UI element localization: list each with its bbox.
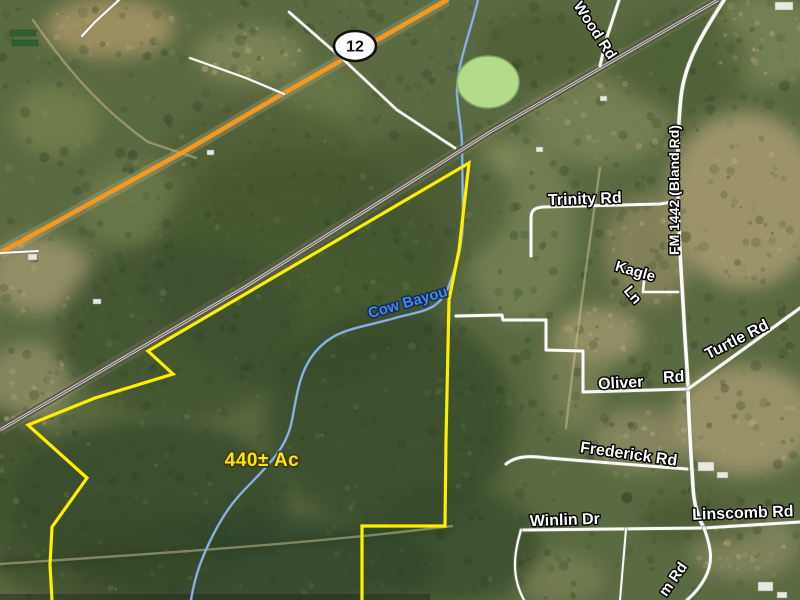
canopy-dot xyxy=(21,500,27,506)
canopy-dot xyxy=(256,71,261,76)
canopy-dot xyxy=(732,414,738,420)
canopy-dot xyxy=(685,532,692,539)
canopy-dot xyxy=(452,415,457,420)
field-dot xyxy=(790,133,793,136)
canopy-dot xyxy=(376,80,386,90)
field-dot xyxy=(111,27,115,31)
canopy-highlight-dot xyxy=(144,359,146,361)
canopy-dot xyxy=(407,256,414,263)
canopy-highlight-dot xyxy=(381,582,385,586)
canopy-dot xyxy=(760,279,766,285)
canopy-dot xyxy=(246,505,257,516)
canopy-dot xyxy=(498,306,502,310)
canopy-dot xyxy=(86,230,95,239)
field-dot xyxy=(728,3,735,10)
canopy-dot xyxy=(462,547,468,553)
canopy-dot xyxy=(17,7,21,11)
canopy-highlight-dot xyxy=(400,549,404,553)
canopy-highlight-dot xyxy=(552,470,557,475)
field-dot xyxy=(86,17,91,22)
canopy-dot xyxy=(131,473,140,482)
canopy-highlight-dot xyxy=(350,333,353,336)
canopy-dot xyxy=(119,369,128,378)
canopy-dot xyxy=(96,357,102,363)
canopy-highlight-dot xyxy=(74,30,79,35)
canopy-dot xyxy=(93,280,96,283)
canopy-dot xyxy=(703,317,710,324)
canopy-dot xyxy=(41,60,46,65)
field-dot xyxy=(762,234,766,238)
field-dot xyxy=(760,451,762,453)
field-dot xyxy=(623,349,626,352)
field-dot xyxy=(703,402,706,405)
canopy-highlight-dot xyxy=(81,242,88,249)
canopy-dot xyxy=(59,147,69,157)
canopy-dot xyxy=(275,72,282,79)
canopy-dot xyxy=(528,399,537,408)
canopy-highlight-dot xyxy=(653,339,657,343)
field-dot xyxy=(618,434,623,439)
canopy-dot xyxy=(285,20,294,29)
canopy-highlight-dot xyxy=(515,178,518,181)
canopy-dot xyxy=(203,122,207,126)
field-dot xyxy=(675,432,679,436)
canopy-dot xyxy=(761,477,764,480)
canopy-highlight-dot xyxy=(361,194,363,196)
field-dot xyxy=(682,439,685,442)
canopy-highlight-dot xyxy=(218,270,220,272)
field-dot xyxy=(682,144,685,147)
canopy-highlight-dot xyxy=(184,280,186,282)
canopy-dot xyxy=(485,373,490,378)
canopy-dot xyxy=(650,566,655,571)
canopy-highlight-dot xyxy=(487,577,493,583)
acreage-label: 440± Ac xyxy=(225,450,300,471)
canopy-highlight-dot xyxy=(414,443,418,447)
field-dot xyxy=(21,308,26,313)
canopy-dot xyxy=(691,123,697,129)
canopy-dot xyxy=(588,340,597,349)
canopy-dot xyxy=(2,293,12,303)
canopy-highlight-dot xyxy=(649,72,652,75)
canopy-dot xyxy=(131,568,139,576)
canopy-highlight-dot xyxy=(697,405,699,407)
canopy-dot xyxy=(271,127,277,133)
field-dot xyxy=(43,243,49,249)
canopy-highlight-dot xyxy=(631,28,639,36)
canopy-dot xyxy=(70,59,81,70)
oliver-label: Oliver xyxy=(598,374,644,393)
canopy-dot xyxy=(640,503,644,507)
canopy-dot xyxy=(78,169,85,176)
canopy-highlight-dot xyxy=(220,104,226,110)
canopy-dot xyxy=(20,107,31,118)
canopy-dot xyxy=(197,177,201,181)
canopy-dot xyxy=(594,563,597,566)
canopy-dot xyxy=(646,112,654,120)
field-dot xyxy=(636,143,643,150)
canopy-dot xyxy=(205,212,211,218)
field-dot xyxy=(623,322,628,327)
canopy-dot xyxy=(552,498,555,501)
field-dot xyxy=(728,572,730,574)
canopy-dot xyxy=(72,430,79,437)
canopy-dot xyxy=(324,34,327,37)
canopy-highlight-dot xyxy=(107,14,113,20)
canopy-highlight-dot xyxy=(752,473,756,477)
canopy-dot xyxy=(457,371,465,379)
field-dot xyxy=(291,61,296,66)
canopy-highlight-dot xyxy=(184,23,192,31)
field-dot xyxy=(791,22,793,24)
canopy-highlight-dot xyxy=(550,162,558,170)
canopy-highlight-dot xyxy=(114,87,121,94)
canopy-highlight-dot xyxy=(626,143,632,149)
canopy-dot xyxy=(771,172,774,175)
canopy-dot xyxy=(559,166,569,176)
field-dot xyxy=(782,46,787,51)
canopy-highlight-dot xyxy=(301,350,309,358)
canopy-dot xyxy=(153,515,157,519)
canopy-highlight-dot xyxy=(217,409,222,414)
canopy-dot xyxy=(110,290,117,297)
canopy-dot xyxy=(704,98,708,102)
canopy-highlight-dot xyxy=(315,495,318,498)
field-dot xyxy=(732,31,739,38)
canopy-dot xyxy=(284,472,293,481)
field-dot xyxy=(564,119,571,126)
canopy-dot xyxy=(458,287,461,290)
field-dot xyxy=(725,556,731,562)
canopy-highlight-dot xyxy=(566,78,568,80)
oliver-rd-label: Rd xyxy=(663,368,685,386)
canopy-dot xyxy=(428,224,433,229)
canopy-dot xyxy=(421,355,425,359)
canopy-dot xyxy=(140,273,147,280)
field-dot xyxy=(736,554,741,559)
field-dot xyxy=(592,307,597,312)
canopy-highlight-dot xyxy=(181,162,186,167)
canopy-dot xyxy=(117,449,120,452)
canopy-highlight-dot xyxy=(260,51,266,57)
field-dot xyxy=(54,34,60,40)
field-dot xyxy=(715,550,717,552)
canopy-dot xyxy=(92,325,99,332)
field-dot xyxy=(622,357,624,359)
canopy-dot xyxy=(184,483,187,486)
field-dot xyxy=(719,61,722,64)
canopy-dot xyxy=(405,84,412,91)
canopy-highlight-dot xyxy=(774,217,779,222)
canopy-dot xyxy=(595,325,598,328)
canopy-highlight-dot xyxy=(313,198,318,203)
field-dot xyxy=(587,311,591,315)
canopy-highlight-dot xyxy=(531,114,538,121)
canopy-highlight-dot xyxy=(792,545,799,552)
canopy-dot xyxy=(372,363,376,367)
canopy-dot xyxy=(513,202,521,210)
canopy-dot xyxy=(243,362,253,372)
canopy-highlight-dot xyxy=(733,564,737,568)
field-dot xyxy=(588,345,591,348)
canopy-dot xyxy=(25,137,32,144)
building xyxy=(758,582,773,591)
canopy-dot xyxy=(119,12,126,19)
canopy-highlight-dot xyxy=(333,525,336,528)
canopy-dot xyxy=(142,484,150,492)
field-dot xyxy=(763,269,765,271)
canopy-dot xyxy=(97,220,104,227)
canopy-highlight-dot xyxy=(203,157,208,162)
canopy-dot xyxy=(148,364,157,373)
canopy-dot xyxy=(571,581,577,587)
canopy-dot xyxy=(659,260,669,270)
canopy-dot xyxy=(203,375,214,386)
canopy-highlight-dot xyxy=(158,235,163,240)
canopy-dot xyxy=(235,35,246,46)
canopy-dot xyxy=(518,409,521,412)
canopy-dot xyxy=(473,509,480,516)
canopy-highlight-dot xyxy=(552,410,557,415)
canopy-dot xyxy=(371,415,378,422)
canopy-dot xyxy=(736,390,742,396)
canopy-highlight-dot xyxy=(319,378,326,385)
field-dot xyxy=(9,368,15,374)
canopy-dot xyxy=(549,267,558,276)
canopy-highlight-dot xyxy=(160,298,164,302)
canopy-highlight-dot xyxy=(427,193,429,195)
aerial-map: Wood RdTrinity RdFM 1442 (Bland Rd)Kagle… xyxy=(0,0,800,600)
canopy-highlight-dot xyxy=(608,277,610,279)
canopy-highlight-dot xyxy=(511,132,516,137)
canopy-highlight-dot xyxy=(63,491,69,497)
canopy-dot xyxy=(444,227,455,238)
canopy-highlight-dot xyxy=(256,60,261,65)
canopy-highlight-dot xyxy=(112,255,117,260)
field-dot xyxy=(89,54,92,57)
canopy-dot xyxy=(300,436,305,441)
canopy-highlight-dot xyxy=(711,209,714,212)
canopy-highlight-dot xyxy=(76,143,80,147)
canopy-dot xyxy=(168,469,174,475)
field-dot xyxy=(586,134,593,141)
field-dot xyxy=(654,298,661,305)
canopy-dot xyxy=(170,256,175,261)
canopy-dot xyxy=(469,186,475,192)
building xyxy=(600,96,607,101)
canopy-highlight-dot xyxy=(306,104,312,110)
canopy-highlight-dot xyxy=(476,343,483,350)
canopy-highlight-dot xyxy=(768,237,776,245)
canopy-dot xyxy=(404,0,409,5)
canopy-highlight-dot xyxy=(370,353,378,361)
canopy-dot xyxy=(681,489,687,495)
canopy-highlight-dot xyxy=(130,313,135,318)
canopy-dot xyxy=(774,174,777,177)
canopy-highlight-dot xyxy=(627,232,632,237)
canopy-dot xyxy=(345,140,348,143)
canopy-dot xyxy=(489,432,499,442)
canopy-dot xyxy=(101,140,105,144)
canopy-dot xyxy=(248,141,251,144)
canopy-highlight-dot xyxy=(152,226,157,231)
canopy-highlight-dot xyxy=(345,485,350,490)
field-dot xyxy=(594,349,597,352)
canopy-highlight-dot xyxy=(485,164,492,171)
field-dot xyxy=(108,52,111,55)
canopy-dot xyxy=(785,226,794,235)
canopy-highlight-dot xyxy=(105,133,109,137)
field-dot xyxy=(602,332,604,334)
canopy-highlight-dot xyxy=(214,335,216,337)
canopy-dot xyxy=(724,269,729,274)
canopy-dot xyxy=(191,161,198,168)
canopy-dot xyxy=(8,348,14,354)
canopy-highlight-dot xyxy=(233,171,240,178)
field-dot xyxy=(696,224,702,230)
canopy-dot xyxy=(336,276,347,287)
canopy-highlight-dot xyxy=(27,175,34,182)
canopy-dot xyxy=(764,223,768,227)
field-dot xyxy=(623,339,626,342)
canopy-dot xyxy=(489,21,493,25)
field-dot xyxy=(768,551,774,557)
canopy-highlight-dot xyxy=(577,133,582,138)
canopy-dot xyxy=(92,6,99,13)
canopy-dot xyxy=(498,269,503,274)
field-dot xyxy=(756,49,759,52)
canopy-dot xyxy=(567,558,571,562)
canopy-highlight-dot xyxy=(548,290,551,293)
canopy-dot xyxy=(498,425,504,431)
canopy-dot xyxy=(151,436,154,439)
canopy-dot xyxy=(214,218,220,224)
canopy-dot xyxy=(73,187,82,196)
canopy-dot xyxy=(335,339,342,346)
canopy-highlight-dot xyxy=(107,585,113,591)
field-dot xyxy=(770,425,777,432)
canopy-dot xyxy=(600,414,609,423)
canopy-dot xyxy=(168,583,178,593)
field-dot xyxy=(260,57,264,61)
canopy-dot xyxy=(595,337,599,341)
field-dot xyxy=(773,370,776,373)
canopy-dot xyxy=(656,59,660,63)
canopy-highlight-dot xyxy=(97,484,105,492)
canopy-highlight-dot xyxy=(174,56,179,61)
canopy-dot xyxy=(752,97,759,104)
canopy-dot xyxy=(311,442,318,449)
field-dot xyxy=(724,540,731,547)
pond xyxy=(457,56,519,108)
canopy-highlight-dot xyxy=(158,563,165,570)
canopy-highlight-dot xyxy=(142,498,148,504)
canopy-dot xyxy=(789,451,798,460)
field-dot xyxy=(9,381,14,386)
field-dot xyxy=(612,248,615,251)
canopy-dot xyxy=(269,577,277,585)
field-dot xyxy=(126,45,132,51)
canopy-highlight-dot xyxy=(149,570,155,576)
canopy-highlight-dot xyxy=(359,2,366,9)
field-dot xyxy=(608,323,613,328)
canopy-highlight-dot xyxy=(453,592,459,598)
canopy-dot xyxy=(761,267,766,272)
canopy-highlight-dot xyxy=(330,354,335,359)
canopy-dot xyxy=(94,575,98,579)
canopy-highlight-dot xyxy=(461,250,466,255)
canopy-highlight-dot xyxy=(387,347,390,350)
canopy-dot xyxy=(611,278,619,286)
canopy-highlight-dot xyxy=(67,514,74,521)
canopy-highlight-dot xyxy=(134,495,139,500)
field-dot xyxy=(588,332,592,336)
canopy-dot xyxy=(418,268,424,274)
canopy-highlight-dot xyxy=(183,11,191,19)
canopy-dot xyxy=(573,138,581,146)
canopy-highlight-dot xyxy=(432,326,436,330)
canopy-highlight-dot xyxy=(17,459,19,461)
canopy-dot xyxy=(423,325,434,336)
canopy-dot xyxy=(294,4,297,7)
canopy-highlight-dot xyxy=(18,167,20,169)
field-dot xyxy=(745,0,750,5)
canopy-dot xyxy=(764,99,775,110)
field-dot xyxy=(723,33,727,37)
field-dot xyxy=(62,304,67,309)
canopy-dot xyxy=(482,173,491,182)
canopy-dot xyxy=(553,431,556,434)
canopy-dot xyxy=(524,337,530,343)
field-dot xyxy=(795,18,798,21)
canopy-dot xyxy=(5,507,9,511)
canopy-dot xyxy=(751,275,757,281)
canopy-dot xyxy=(776,33,785,42)
canopy-dot xyxy=(739,206,742,209)
canopy-dot xyxy=(570,56,576,62)
canopy-dot xyxy=(70,414,77,421)
canopy-highlight-dot xyxy=(792,243,798,249)
canopy-highlight-dot xyxy=(522,553,525,556)
canopy-highlight-dot xyxy=(475,410,478,413)
canopy-dot xyxy=(641,176,645,180)
canopy-dot xyxy=(266,333,272,339)
canopy-highlight-dot xyxy=(340,446,343,449)
canopy-dot xyxy=(714,42,719,47)
canopy-highlight-dot xyxy=(625,473,630,478)
canopy-dot xyxy=(121,106,128,113)
canopy-highlight-dot xyxy=(733,315,739,321)
canopy-highlight-dot xyxy=(140,317,143,320)
canopy-highlight-dot xyxy=(55,432,60,437)
canopy-dot xyxy=(703,17,706,20)
canopy-dot xyxy=(196,524,201,529)
canopy-dot xyxy=(117,262,127,272)
canopy-highlight-dot xyxy=(5,165,12,172)
field-dot xyxy=(681,427,687,433)
canopy-highlight-dot xyxy=(496,400,499,403)
canopy-dot xyxy=(10,218,17,225)
canopy-dot xyxy=(57,161,64,168)
canopy-dot xyxy=(332,366,341,375)
canopy-highlight-dot xyxy=(8,547,11,550)
canopy-highlight-dot xyxy=(262,496,264,498)
canopy-highlight-dot xyxy=(93,114,96,117)
canopy-dot xyxy=(102,540,113,551)
canopy-highlight-dot xyxy=(321,433,325,437)
canopy-dot xyxy=(509,355,517,363)
canopy-highlight-dot xyxy=(769,526,775,532)
